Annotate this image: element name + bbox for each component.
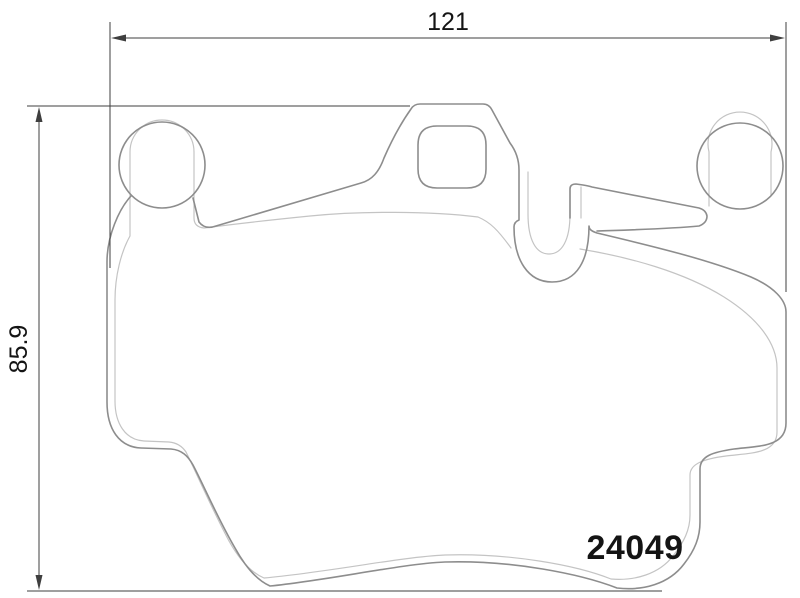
- part-number-label: 24049: [587, 529, 684, 567]
- brake-pad-drawing: 121 85.9 24049: [0, 0, 800, 598]
- technical-drawing-canvas: 121 85.9 24049: [0, 0, 800, 598]
- height-dimension-label: 85.9: [5, 325, 33, 374]
- drawing-background: [0, 0, 800, 598]
- width-dimension-label: 121: [427, 8, 469, 36]
